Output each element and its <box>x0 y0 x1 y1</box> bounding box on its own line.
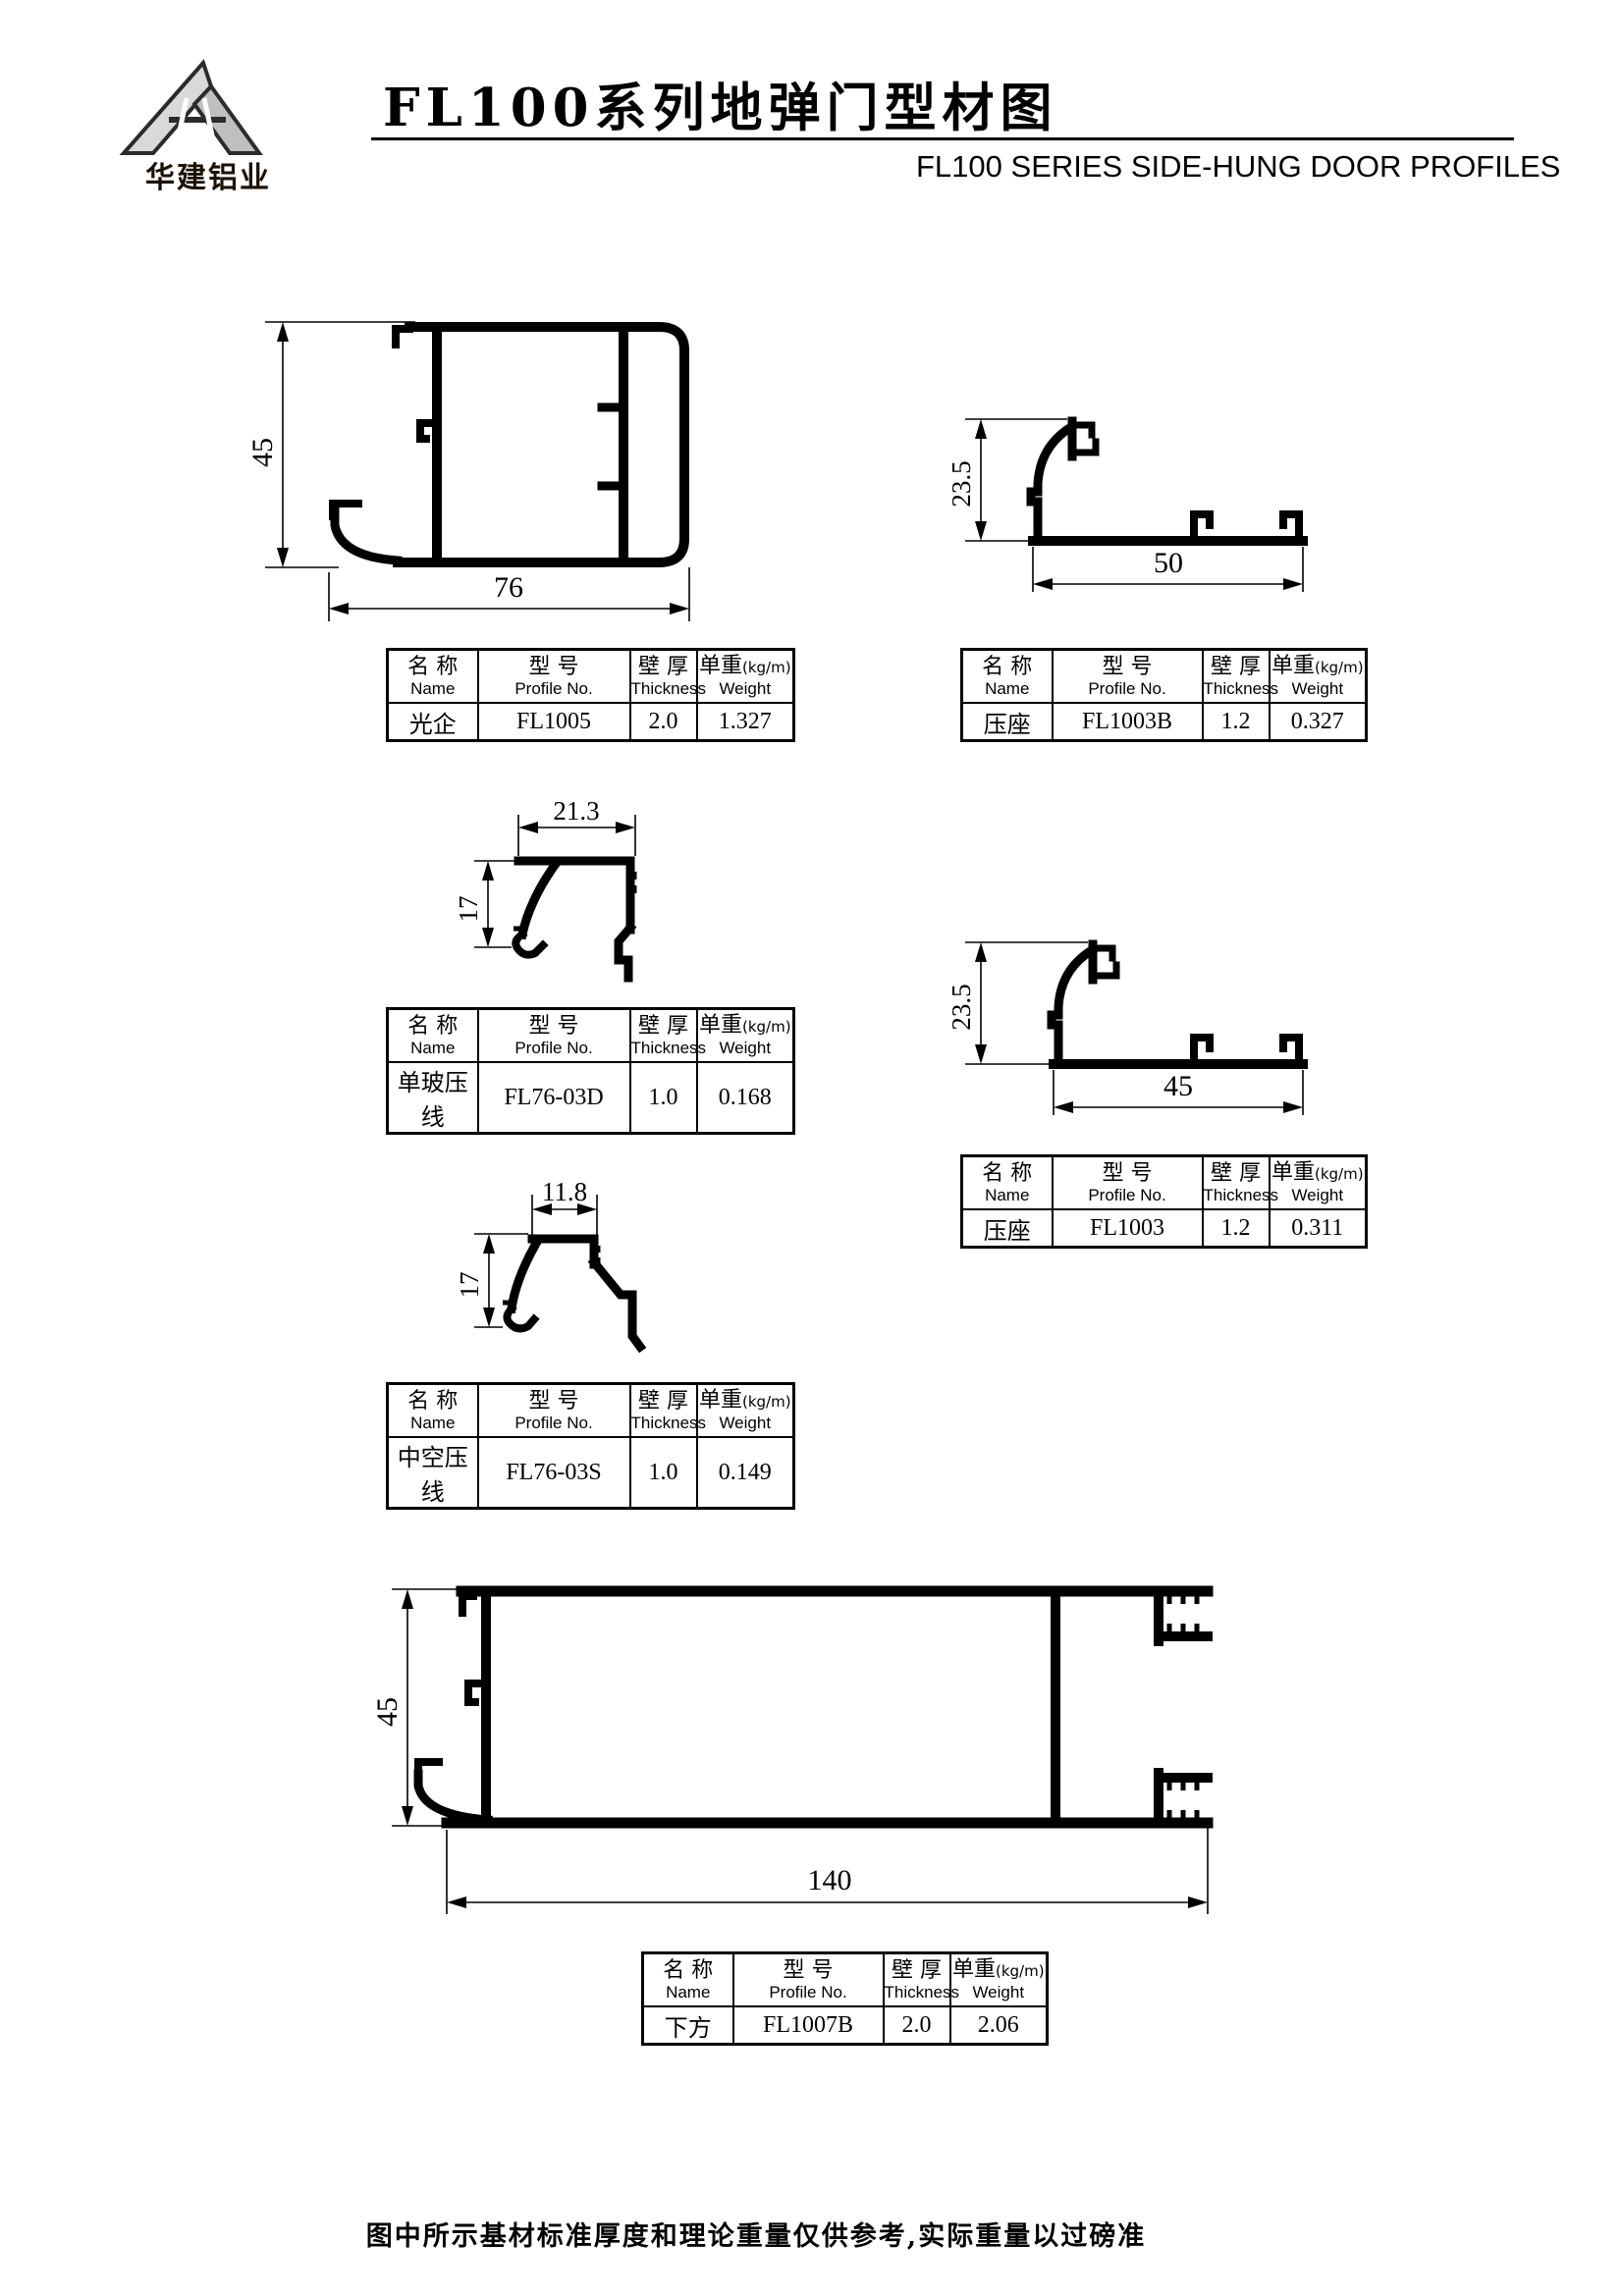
table-row: 中空压线 FL76-03S 1.0 0.149 <box>388 1437 794 1509</box>
cell-name: 单玻压线 <box>388 1062 478 1134</box>
profile-table-fl1003b: 名 称Name 型 号Profile No. 壁 厚Thickness 单重(k… <box>960 648 1368 742</box>
cell-weight: 1.327 <box>697 703 794 741</box>
cell-weight: 0.168 <box>697 1062 794 1134</box>
dim-width-label: 50 <box>1154 547 1183 579</box>
profile-table-fl1005: 名 称Name 型 号Profile No. 壁 厚Thickness 单重(k… <box>386 648 795 742</box>
profile-drawing-fl1005: 45 76 <box>250 290 702 633</box>
profile-drawing-fl76-03d: 21.3 17 <box>447 795 663 1001</box>
cell-thickness: 1.2 <box>1203 703 1270 741</box>
cell-weight: 2.06 <box>950 2006 1048 2045</box>
cell-profile-no: FL1005 <box>478 703 630 741</box>
dim-height-label: 45 <box>246 438 279 467</box>
th-name: 名 称Name <box>643 1953 733 2007</box>
th-thickness: 壁 厚Thickness <box>884 1953 950 2007</box>
cell-profile-no: FL1003B <box>1053 703 1203 741</box>
table-row: 光企 FL1005 2.0 1.327 <box>388 703 794 741</box>
th-thickness: 壁 厚Thickness <box>1203 1156 1270 1210</box>
profile-shape <box>514 861 635 978</box>
dimension-height: 23.5 <box>947 942 1088 1064</box>
dim-height-label: 45 <box>371 1697 404 1727</box>
cell-thickness: 2.0 <box>884 2006 950 2045</box>
profile-drawing-fl1007b: 45 140 <box>378 1569 1232 1927</box>
dim-height-label: 17 <box>455 1272 484 1299</box>
table-row: 压座 FL1003 1.2 0.311 <box>962 1209 1367 1248</box>
logo-triangle-icon <box>124 63 259 153</box>
dimension-width: 140 <box>447 1828 1208 1914</box>
th-name: 名 称Name <box>962 650 1053 704</box>
cell-weight: 0.149 <box>697 1437 794 1509</box>
th-profile-no: 型 号Profile No. <box>478 650 630 704</box>
profile-table-fl1007b: 名 称Name 型 号Profile No. 壁 厚Thickness 单重(k… <box>641 1951 1049 2046</box>
cell-name: 压座 <box>962 1209 1053 1248</box>
cell-profile-no: FL1003 <box>1053 1209 1203 1248</box>
profile-shape <box>333 327 684 562</box>
page-title: FL100系列地弹门型材图 <box>383 67 1058 141</box>
dimension-width: 45 <box>1054 1070 1303 1115</box>
cell-name: 下方 <box>643 2006 733 2045</box>
profile-table-fl76-03s: 名 称Name 型 号Profile No. 壁 厚Thickness 单重(k… <box>386 1382 795 1510</box>
th-profile-no: 型 号Profile No. <box>478 1384 630 1438</box>
th-thickness: 壁 厚Thickness <box>1203 650 1270 704</box>
profile-shape <box>1031 421 1303 541</box>
cell-thickness: 1.2 <box>1203 1209 1270 1248</box>
table-row: 压座 FL1003B 1.2 0.327 <box>962 703 1367 741</box>
profile-table-fl1003: 名 称Name 型 号Profile No. 壁 厚Thickness 单重(k… <box>960 1154 1368 1249</box>
th-thickness: 壁 厚Thickness <box>630 650 697 704</box>
table-row: 单玻压线 FL76-03D 1.0 0.168 <box>388 1062 794 1134</box>
cell-profile-no: FL76-03D <box>478 1062 630 1134</box>
company-logo <box>110 59 306 157</box>
page-subtitle-en: FL100 SERIES SIDE-HUNG DOOR PROFILES <box>916 149 1515 185</box>
profile-table-fl76-03d: 名 称Name 型 号Profile No. 壁 厚Thickness 单重(k… <box>386 1007 795 1135</box>
dim-width-label: 45 <box>1163 1070 1193 1102</box>
th-weight: 单重(kg/m)Weight <box>1270 650 1367 704</box>
cell-name: 光企 <box>388 703 478 741</box>
dim-height-label: 17 <box>454 896 483 923</box>
dimension-width: 50 <box>1033 547 1303 592</box>
dim-height-label: 23.5 <box>947 460 976 507</box>
profile-drawing-fl1003: 23.5 45 <box>938 921 1370 1132</box>
th-profile-no: 型 号Profile No. <box>1053 1156 1203 1210</box>
dimension-width: 21.3 <box>518 796 635 856</box>
dimension-height: 45 <box>246 322 415 567</box>
dim-width-label: 76 <box>494 571 523 604</box>
th-profile-no: 型 号Profile No. <box>478 1009 630 1063</box>
dimension-height: 17 <box>454 861 515 947</box>
dimension-height: 23.5 <box>947 419 1067 541</box>
profile-shape <box>1052 944 1303 1064</box>
th-weight: 单重(kg/m)Weight <box>697 1384 794 1438</box>
cell-name: 压座 <box>962 703 1053 741</box>
profile-shape <box>503 1239 640 1347</box>
cell-thickness: 1.0 <box>630 1437 697 1509</box>
dim-height-label: 23.5 <box>947 984 976 1030</box>
th-name: 名 称Name <box>388 650 478 704</box>
cell-profile-no: FL1007B <box>733 2006 884 2045</box>
dim-width-label: 140 <box>808 1864 852 1896</box>
th-name: 名 称Name <box>388 1384 478 1438</box>
th-thickness: 壁 厚Thickness <box>630 1009 697 1063</box>
cell-profile-no: FL76-03S <box>478 1437 630 1509</box>
th-name: 名 称Name <box>388 1009 478 1063</box>
title-rule <box>371 137 1514 140</box>
dimension-width: 76 <box>329 567 689 621</box>
th-weight: 单重(kg/m)Weight <box>697 650 794 704</box>
profile-drawing-fl76-03s: 11.8 17 <box>442 1171 668 1382</box>
th-weight: 单重(kg/m)Weight <box>1270 1156 1367 1210</box>
cell-thickness: 2.0 <box>630 703 697 741</box>
profile-drawing-fl1003b: 23.5 50 <box>938 398 1370 609</box>
th-thickness: 壁 厚Thickness <box>630 1384 697 1438</box>
dimension-width: 11.8 <box>532 1177 597 1236</box>
th-weight: 单重(kg/m)Weight <box>697 1009 794 1063</box>
dim-width-label: 11.8 <box>542 1177 587 1206</box>
cell-weight: 0.311 <box>1270 1209 1367 1248</box>
cell-thickness: 1.0 <box>630 1062 697 1134</box>
dim-width-label: 21.3 <box>553 796 599 826</box>
th-profile-no: 型 号Profile No. <box>733 1953 884 2007</box>
th-name: 名 称Name <box>962 1156 1053 1210</box>
cell-weight: 0.327 <box>1270 703 1367 741</box>
table-row: 下方 FL1007B 2.0 2.06 <box>643 2006 1048 2045</box>
th-profile-no: 型 号Profile No. <box>1053 650 1203 704</box>
brand-text: 华建铝业 <box>110 153 306 196</box>
cell-name: 中空压线 <box>388 1437 478 1509</box>
th-weight: 单重(kg/m)Weight <box>950 1953 1048 2007</box>
profile-shape <box>418 1591 1208 1823</box>
footer-note: 图中所示基材标准厚度和理论重量仅供参考,实际重量以过磅准 <box>324 2215 1188 2253</box>
